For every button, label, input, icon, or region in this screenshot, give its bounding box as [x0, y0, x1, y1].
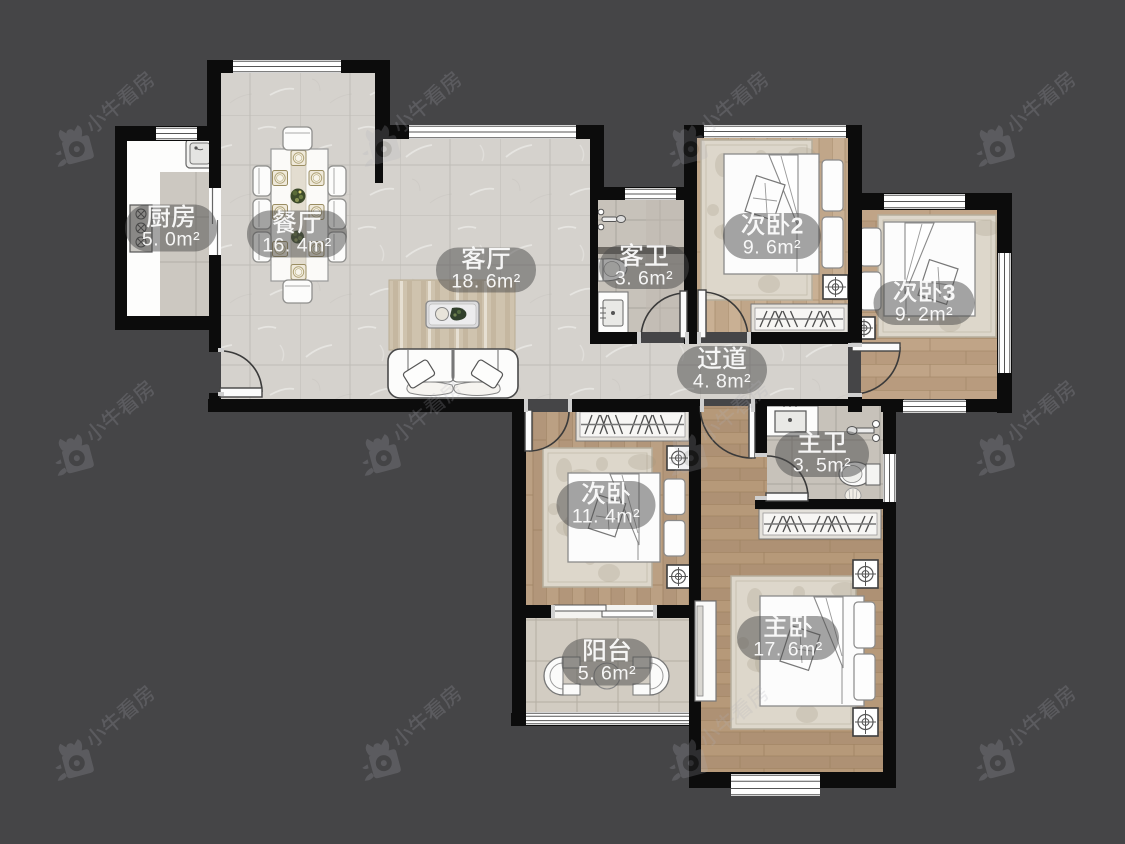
svg-text:18. 6m²: 18. 6m²: [451, 271, 521, 293]
svg-text:3. 6m²: 3. 6m²: [615, 268, 673, 290]
svg-text:11. 4m²: 11. 4m²: [572, 506, 640, 528]
svg-text:17. 6m²: 17. 6m²: [753, 639, 823, 661]
svg-text:4. 8m²: 4. 8m²: [693, 371, 751, 393]
svg-text:5. 6m²: 5. 6m²: [578, 663, 636, 685]
svg-text:9. 6m²: 9. 6m²: [743, 237, 801, 259]
svg-text:3: 3: [943, 280, 956, 306]
svg-text:5. 0m²: 5. 0m²: [142, 229, 200, 251]
svg-text:2: 2: [791, 213, 804, 239]
svg-text:3. 5m²: 3. 5m²: [793, 455, 851, 477]
svg-text:9. 2m²: 9. 2m²: [895, 304, 953, 326]
svg-text:16. 4m²: 16. 4m²: [262, 235, 332, 257]
